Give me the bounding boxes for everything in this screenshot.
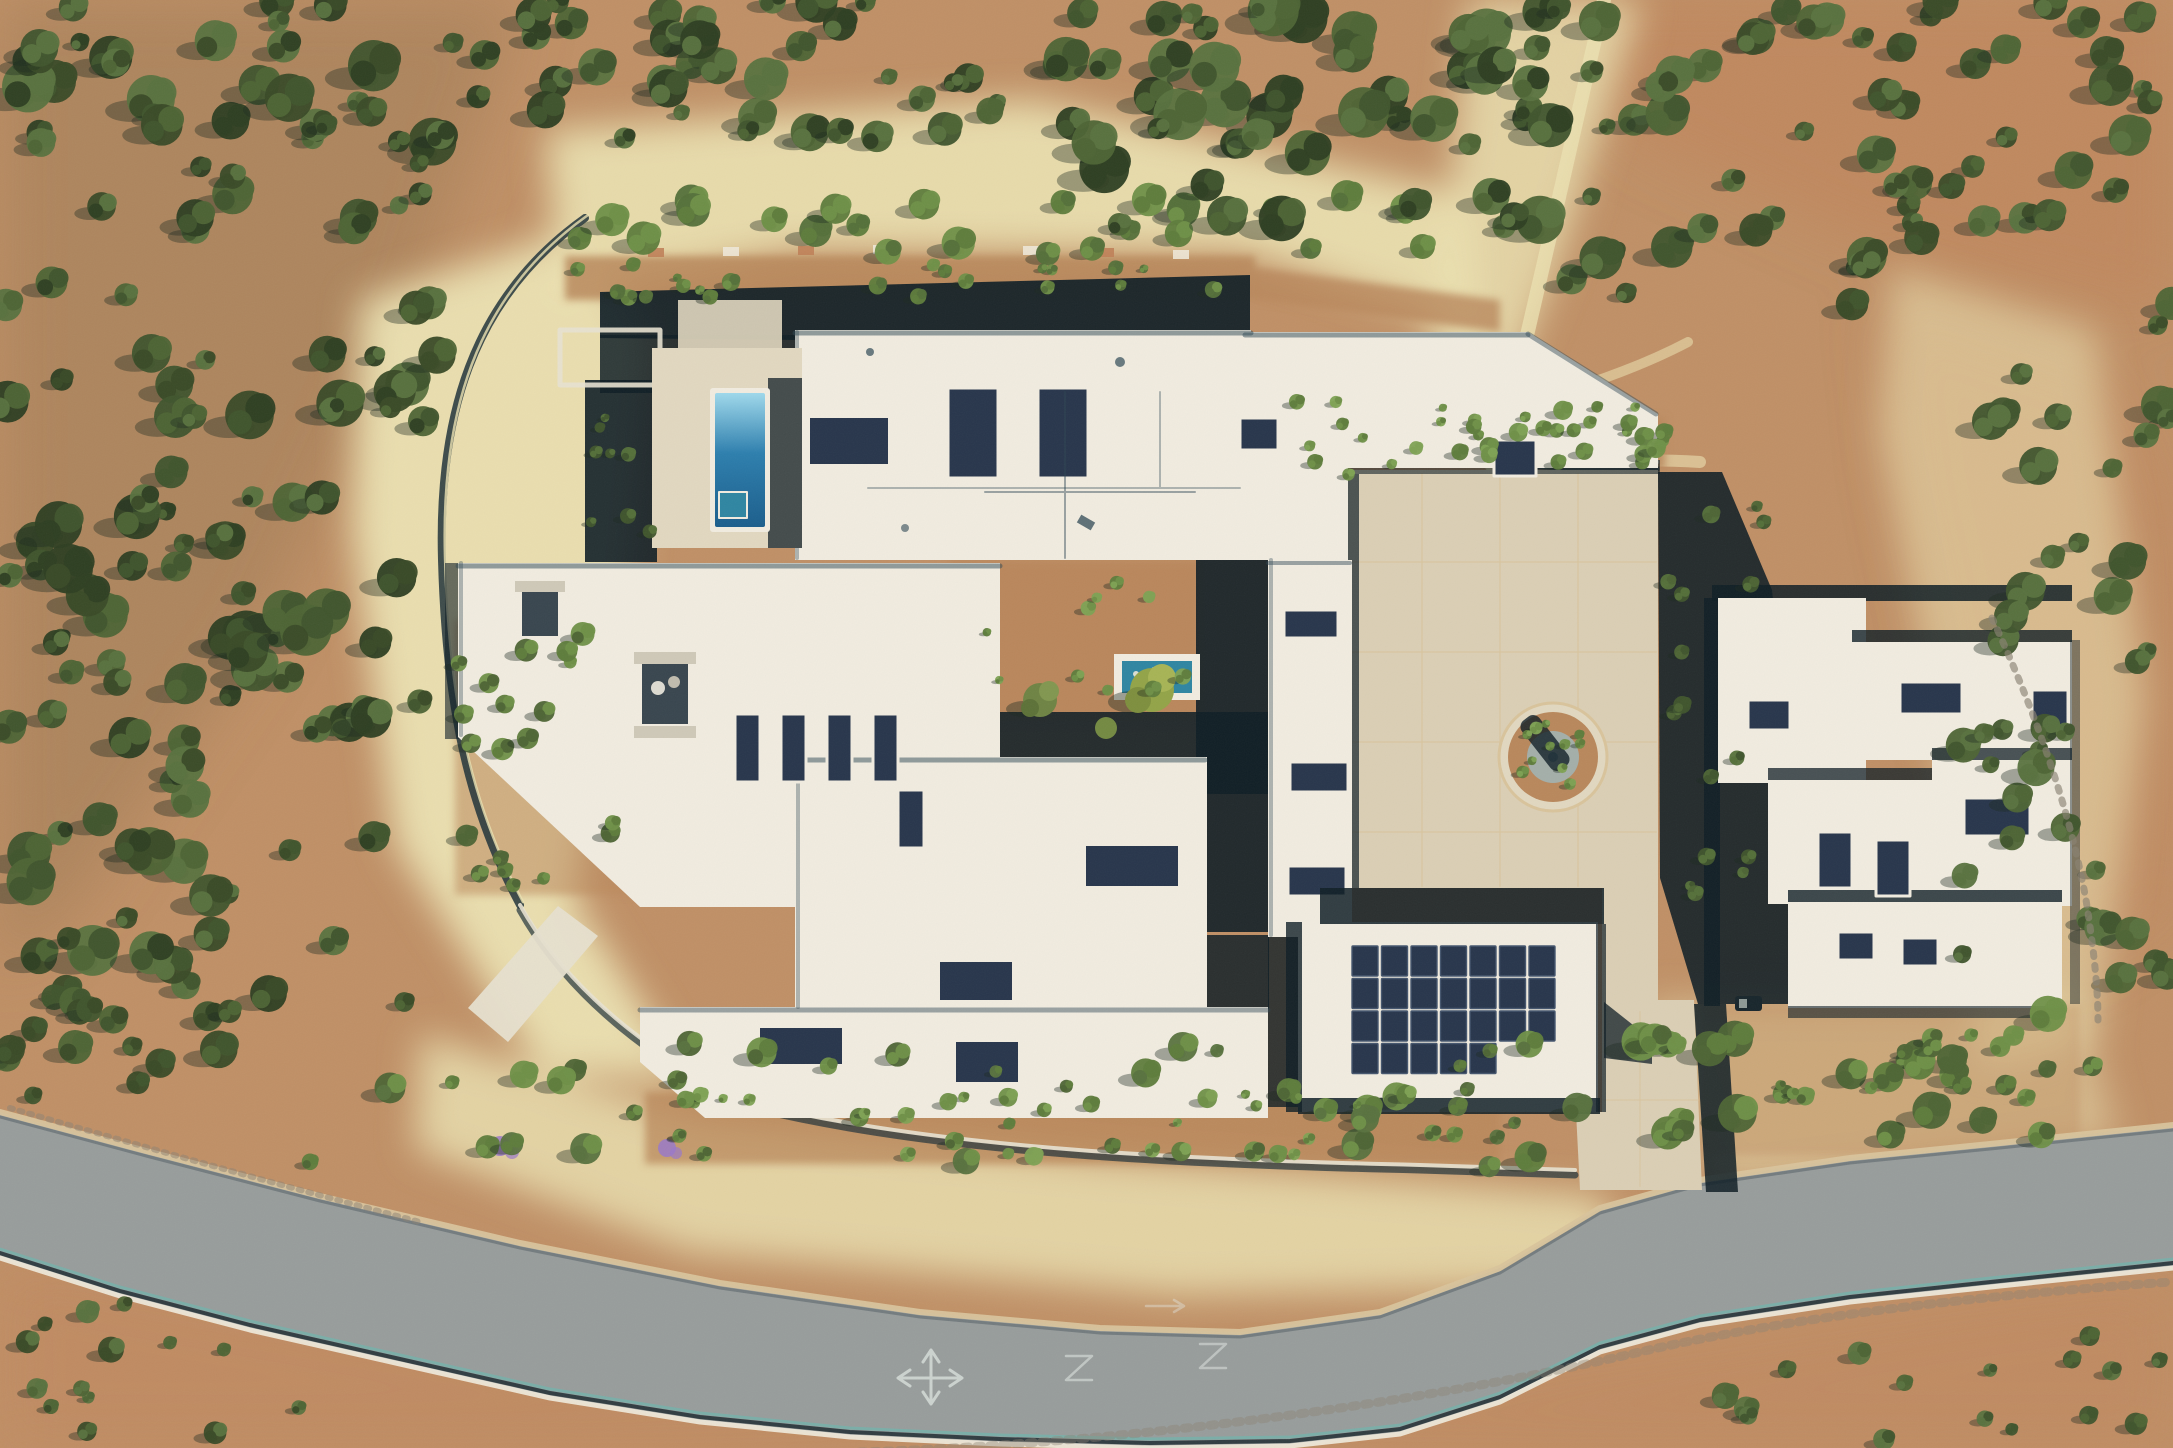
aerial-photo	[0, 0, 2173, 1448]
aerial-photo-container	[0, 0, 2173, 1448]
grain	[0, 0, 2173, 1448]
photo-grain	[0, 0, 2173, 1448]
